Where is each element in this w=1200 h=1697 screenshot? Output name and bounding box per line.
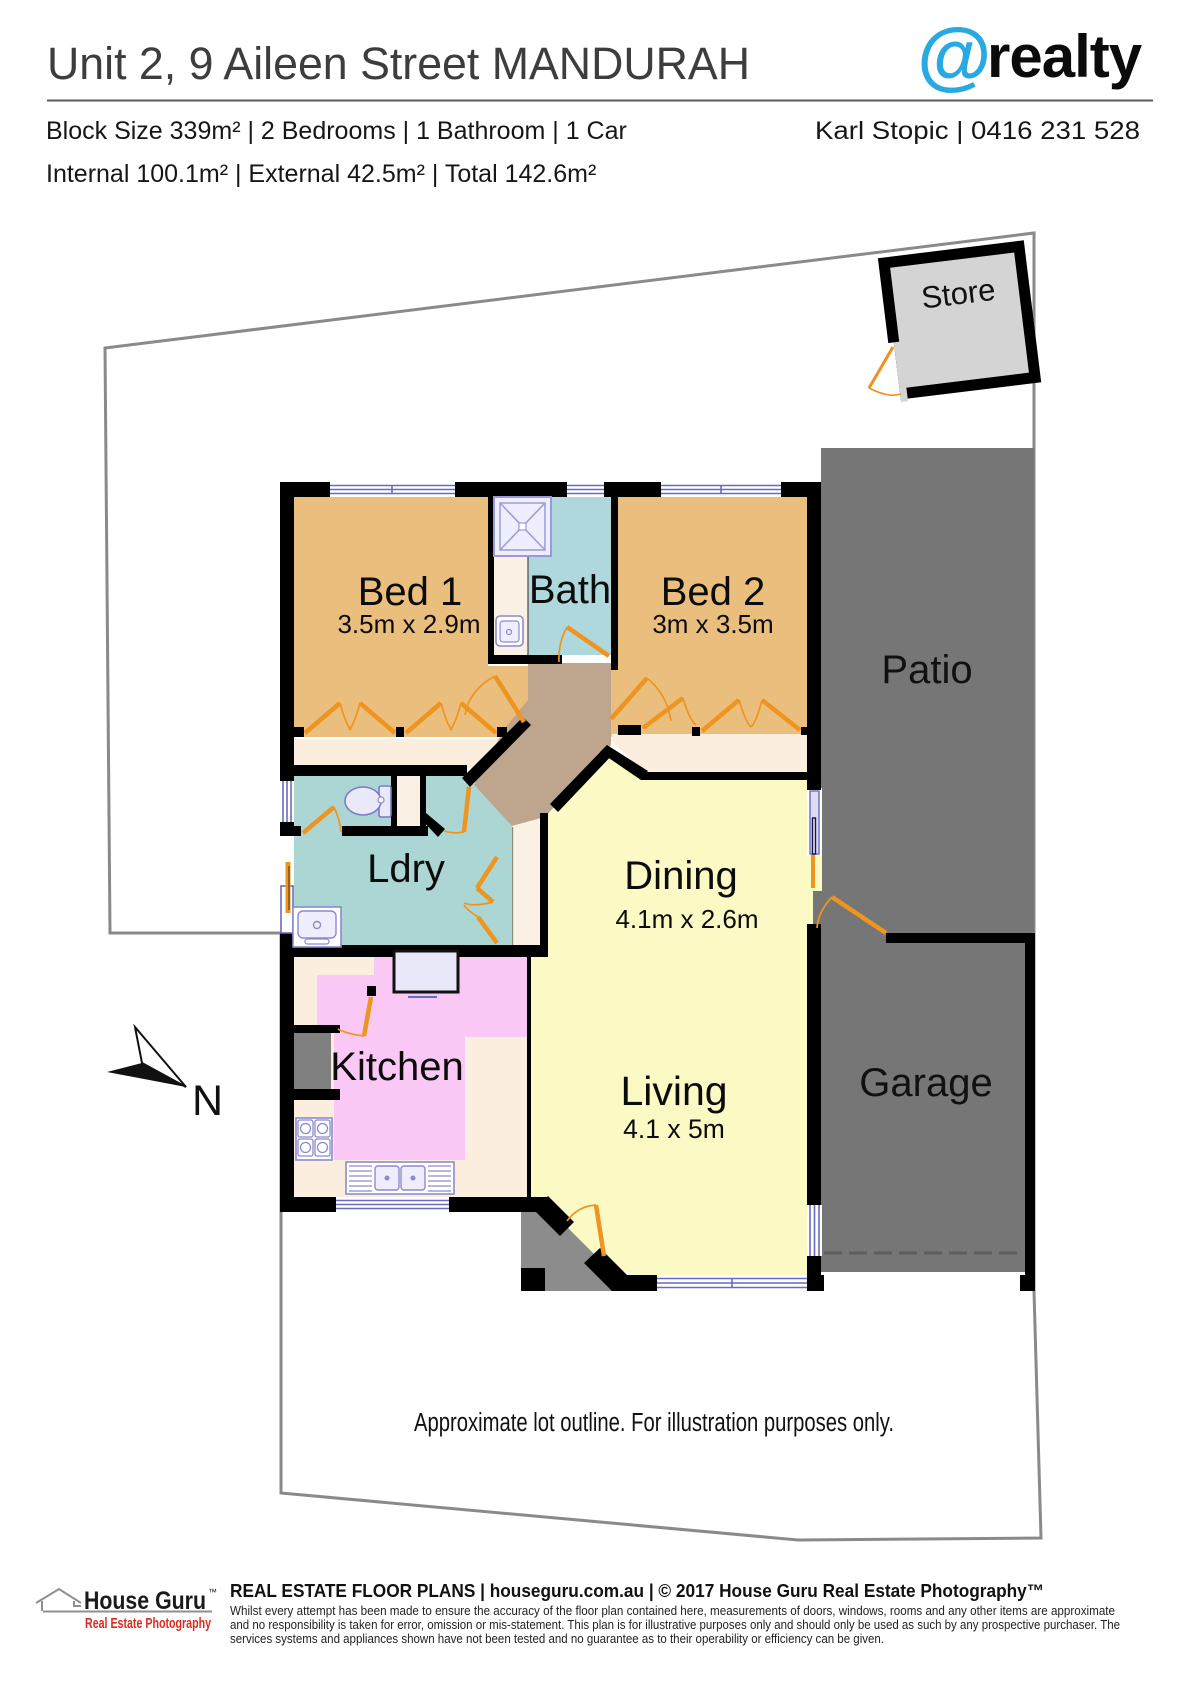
svg-text:realty: realty xyxy=(987,23,1143,90)
svg-text:Bed 1: Bed 1 xyxy=(358,570,463,614)
svg-text:@: @ xyxy=(916,14,990,99)
svg-text:House Guru: House Guru xyxy=(84,1587,206,1615)
svg-text:Approximate lot outline. For i: Approximate lot outline. For illustratio… xyxy=(414,1409,894,1437)
svg-text:Bed 2: Bed 2 xyxy=(661,570,766,614)
svg-text:Karl Stopic | 0416 231 528: Karl Stopic | 0416 231 528 xyxy=(815,117,1140,145)
svg-text:Block Size 339m² | 2 Bedrooms: Block Size 339m² | 2 Bedrooms | 1 Bathro… xyxy=(46,117,627,145)
svg-text:Whilst every attempt has been: Whilst every attempt has been made to en… xyxy=(230,1604,1115,1618)
svg-text:N: N xyxy=(192,1077,223,1125)
svg-text:4.1 x 5m: 4.1 x 5m xyxy=(623,1114,725,1144)
svg-text:Living: Living xyxy=(620,1068,727,1114)
svg-text:™: ™ xyxy=(208,1587,217,1597)
svg-text:Bath: Bath xyxy=(529,568,611,612)
svg-text:Garage: Garage xyxy=(859,1061,992,1105)
svg-text:REAL ESTATE FLOOR PLANS | hou: REAL ESTATE FLOOR PLANS | houseguru.com.… xyxy=(230,1581,1044,1601)
svg-text:Patio: Patio xyxy=(881,648,972,692)
svg-text:and no responsibility is taken: and no responsibility is taken for error… xyxy=(230,1618,1120,1632)
svg-text:Ldry: Ldry xyxy=(367,847,445,891)
svg-text:3.5m x 2.9m: 3.5m x 2.9m xyxy=(337,609,480,639)
svg-text:4.1m x 2.6m: 4.1m x 2.6m xyxy=(615,904,758,934)
svg-text:3m x 3.5m: 3m x 3.5m xyxy=(652,609,773,639)
svg-text:Kitchen: Kitchen xyxy=(330,1045,463,1089)
svg-text:Real Estate Photography: Real Estate Photography xyxy=(85,1616,211,1632)
svg-text:services systems and appliance: services systems and appliances shown ha… xyxy=(230,1632,884,1646)
svg-text:Dining: Dining xyxy=(624,854,737,898)
svg-text:Internal 100.1m² | External 42: Internal 100.1m² | External 42.5m² | Tot… xyxy=(46,160,596,188)
svg-text:Unit 2, 9 Aileen Street MANDUR: Unit 2, 9 Aileen Street MANDURAH xyxy=(47,38,750,89)
